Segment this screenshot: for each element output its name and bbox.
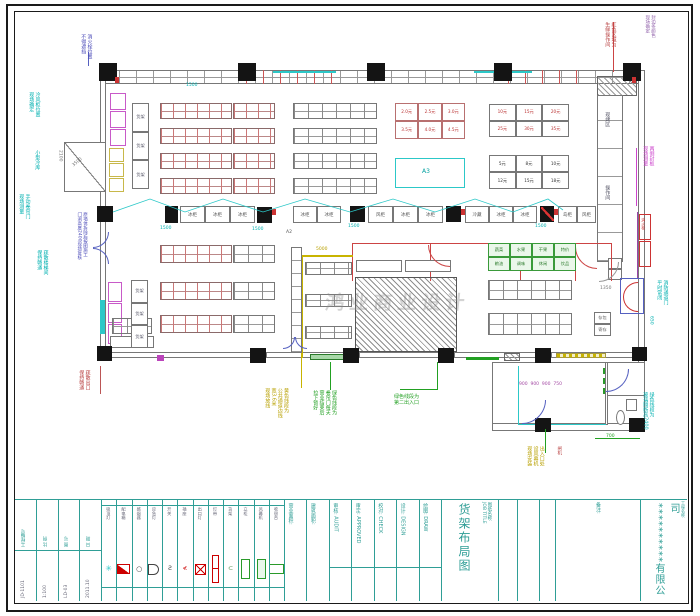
legend-label: 感烟器 [137,507,141,549]
note-line: 出入口处 [539,446,544,466]
note-line: 保持畅通 [78,370,83,390]
note-shutter-note-center: 绿色线段为卷帘门每天营业结束后拉下锁好 [312,390,336,415]
tb-divider [284,499,285,601]
note-dim-top: 1500 [186,83,197,89]
column [250,348,266,363]
note-line: 黄色线段为 [283,388,288,418]
note-line: 保持畅通 [36,250,41,275]
note-line: 封边条颜色 [650,15,655,38]
info-value: 1:100 [44,554,49,598]
legend-divider [193,499,194,601]
column [97,346,112,361]
sign-label: 校对: CHECK [377,503,383,533]
promo-shelf: 调味 [510,257,532,271]
note-cold-room-note: 小型冷库 [34,150,39,170]
price-shelf: 18元 [542,172,569,189]
job-title-label: 图纸名称: JOB TITLE [480,502,491,524]
note-dim-2100: 2100 [57,150,62,161]
column [632,347,647,361]
service-counter [597,95,623,262]
legend-label: 开关 [167,507,171,549]
legend-symbol-circle: ○ [136,566,142,573]
column [438,348,454,363]
info-label: 图 号 [65,503,70,547]
legend-symbol-lt: ≮ [182,566,187,572]
promo-shelf: 蔬菜 [488,243,510,257]
yellow-aisle-line [303,255,353,257]
note-line: 玻璃隔断高2400 [642,392,647,430]
sign-divider [396,499,397,601]
note-line: 绿色线段为 [331,390,336,415]
drawing-sheet: 冰柜冰柜冰柜冰柜冰柜风柜冰柜冰柜冷藏冰柜冰柜岛柜风柜2.0元2.5元3.0元3.… [0,0,700,616]
info-value: JD-1101 [22,554,27,598]
legend-label: 插座 [182,507,186,549]
sink-fixture [626,399,637,411]
gondola [233,315,275,333]
lobby-cyan-line [518,366,519,424]
price-shelf: 20元 [542,104,569,121]
note-line: 闸机 [556,446,561,455]
wall-cabinet [109,178,124,192]
note-line: 营业结束后 [318,390,323,415]
legend-symbol-cell: S [162,553,177,585]
note-dim-aisle-2: 1500 [252,227,263,233]
side-shelf: 货架 [132,132,149,161]
note-line: 消火栓 [641,218,645,230]
gondola [160,103,232,119]
legend-symbol-half [149,564,159,575]
legend-symbol-vrect [241,559,250,579]
info-value: LD-03 [65,554,70,598]
price-shelf: 3.5元 [395,121,418,139]
info-table-row-line [15,550,101,551]
wall-cabinet [110,111,126,128]
company-name: **********有限公司 [651,503,681,601]
legend-symbol-tribox [117,564,130,574]
note-line: 消防通道门 [662,280,667,305]
gondola [233,153,275,169]
bottom-wall [359,352,440,358]
side-shelf: 货架 [131,280,148,303]
note-line: 平时常闭 [656,280,661,305]
tb-divider [498,499,499,601]
legend-label: 立柜 [243,507,247,549]
wall-cabinet [108,282,122,302]
note-line: 现场放线 [264,388,269,418]
legend-divider [238,499,239,601]
note-counter-label-2: 操作间 [604,185,609,200]
note-line: 现场安装 [526,446,531,466]
promo-shelf: 饮品 [554,257,576,271]
note-line: 小型冷库 [34,150,39,170]
legend-symbol-burst: ✳ [105,565,112,573]
leader [330,362,331,390]
price-shelf: 25元 [489,121,516,138]
price-shelf: 15元 [516,104,543,121]
legend-label: 应急灯 [152,507,156,549]
red-marker [632,77,636,83]
sign-divider [351,499,352,601]
note-line: 疏散楼梯间 [42,250,47,275]
note-line: 门洞高度2400现场复核 [76,212,81,259]
price-shelf: 10元 [542,155,569,172]
legend-symbol-hrect [269,564,284,574]
gondola [233,103,275,119]
info-label: 工程编号 [22,503,27,547]
leader [100,366,101,394]
note-air-curtain-note: 出入口处设风幕机现场安装 [526,446,544,466]
note-exit-note-bl: 疏散出口保持畅通 [78,370,90,390]
leader [301,358,302,388]
sign-label: 审核: AUDIT [332,503,338,532]
legend-symbol-vbar [212,555,219,583]
note-line: 冷风柜位置 [34,92,39,117]
sign-divider [306,499,307,601]
sign-divider [374,499,375,601]
legend-divider [254,499,255,601]
legend-divider [269,499,270,601]
legend-label: 收银台 [274,507,278,549]
price-shelf: 4.0元 [418,121,441,139]
price-shelf: 30元 [516,121,543,138]
note-line: 疏散出口 [84,370,89,390]
gondola [233,128,275,144]
sign-label: 建筑面积: [309,503,315,525]
note-line: 现场确定 [28,92,33,117]
gondola [160,245,232,263]
sign-divider [329,499,330,601]
left-wall-shutter [100,300,105,334]
price-shelf: 2.5元 [418,103,441,121]
note-line: 红色区域为 [610,22,615,47]
legend-symbol-cell [238,553,253,585]
note-line: 不得遮挡 [80,34,85,59]
note-edge-seal-note: 两侧封板现场测量 [642,146,654,166]
note-checkout-dims: 900 900 900 750 [519,382,562,388]
legend-symbol-s: S [168,566,172,572]
note-line: 生鲜操作间 [604,22,609,47]
price-shelf: 35元 [542,121,569,138]
note-line: 手动卷帘门 [24,194,29,219]
entry-green-line [466,357,499,360]
note-dim-aisle-1: 1500 [160,226,171,232]
legend-bottom-line [101,587,284,588]
note-dim-1350: 1350 [600,286,611,292]
gondola [293,153,377,169]
gondola [293,103,377,119]
column [535,418,551,432]
gondola [233,245,275,263]
note-dim-650: 650 [648,316,653,325]
note-wall-demolish-note: 原墙体拆除后按图施工门洞高度2400现场复核 [76,212,86,259]
center-shelf-row [305,262,352,275]
note-glass-note: 绿色线段为玻璃隔断高2400 [642,392,654,430]
note-line: 绿色线段为 [648,392,653,430]
price-shelf: 15元 [516,172,543,189]
legend-divider [223,499,224,601]
folding-door [603,368,605,394]
title-block: 工程编号JD-1101比 例1:100图 号LD-03日 期2011.10 吸顶… [15,499,687,601]
tb-divider [555,499,556,601]
side-shelf: 货架 [132,160,149,189]
legend-symbol-cell: ○ [132,553,147,585]
legend-symbol-cell [116,553,131,585]
dimension-line [595,438,640,439]
note-dim-aisle-4: 1500 [535,224,546,230]
note-line: 现烤区 [604,112,609,127]
wall-cabinet [110,93,126,110]
note-line: 设风幕机 [532,446,537,466]
column [343,348,359,363]
lobby-cyan-line [518,424,606,425]
note-line: 现场测量 [18,194,23,219]
legend-symbol-c: ⊂ [228,566,233,572]
legend-divider [177,499,178,601]
note-line: 现场确定 [644,15,649,38]
legend-label: 货架 [228,507,232,549]
info-label: 日 期 [87,503,92,547]
tb-divider [539,499,540,601]
note-stair-note: 疏散楼梯间保持畅通 [36,250,48,275]
center-shelf-row [305,326,352,339]
fire-hydrant-box [639,241,651,267]
column [535,348,551,363]
note-zone-a2: A2 [286,230,292,236]
note-line: 公共通道边线 [277,388,282,418]
gondola [160,282,232,300]
locker: 寄存 [594,324,611,336]
price-shelf: 8元 [516,155,543,172]
note-line: 现场测量 [642,146,647,166]
side-shelf: 货架 [131,325,148,348]
note-dim-aisle-3: 1500 [348,224,359,230]
wall-cabinet [109,163,124,177]
toilet-fixture [616,410,625,425]
tb-divider [640,499,641,601]
tb-divider [517,499,518,601]
wall-cabinet [110,129,126,146]
legend-divider [116,499,117,601]
note-counter-label-1: 现烤区 [604,112,609,127]
price-shelf: 5元 [489,155,516,172]
promo-shelf: 水果 [510,243,532,257]
red-marker [115,77,119,83]
leader [636,148,637,206]
legend-divider [208,499,209,601]
leader [437,362,438,390]
legend-label: 灯带 [213,507,217,549]
price-shelf: 3.0元 [442,103,465,121]
side-shelf: 货架 [132,103,149,132]
legend-symbol-tick [213,568,218,569]
gondola [160,128,232,144]
legend-label: 出口灯 [198,507,202,549]
gondola [293,128,377,144]
note-cold-cabinet-note: 冷风柜位置现场确定 [28,92,40,117]
legend-divider [162,499,163,601]
note-line: 拉下锁好 [312,390,317,415]
note-hydrant-note: 消火栓位置不得遮挡 [80,34,92,59]
marker [157,355,164,361]
legend-label: 风幕机 [259,507,263,549]
note-line: 宽3.6米 [270,388,275,418]
price-shelf: 12元 [489,172,516,189]
notes-label: 备注: [595,502,602,514]
leader [400,389,438,390]
drawing-title: 货架布局图 [456,503,473,573]
job-title-label-cn: 图纸名称: [486,502,491,524]
note-line: 两侧封板 [648,146,653,166]
note-hydrant-box-label: 消火栓 [641,218,645,230]
legend-symbol-xbox [195,564,206,575]
note-line: 操作间 [604,185,609,200]
entry-hatch-strip [504,353,520,361]
note-line: 卷帘门每天 [325,390,330,415]
legend-label: 吸顶灯 [106,507,110,549]
note-dim-700: 700 [606,434,615,440]
legend-symbol-cell [147,553,162,585]
note-zone-a3: A3 [422,168,430,176]
zone-a3-box [395,158,465,188]
legend-symbol-vrect2 [257,559,266,579]
side-shelf: 货架 [131,303,148,326]
column [494,63,512,81]
sign-label: 审定: APPROVED [354,503,360,543]
legend-symbol-cell: ≮ [177,553,192,585]
legend-symbol-cell [269,553,284,585]
roller-shutter [310,354,346,360]
job-title-label-en: JOB TITLE [480,502,485,524]
prep-room-wall [352,243,353,281]
note-line: 原墙体拆除后按图施工 [82,212,87,259]
leader [545,429,546,453]
wall-cabinet [109,148,124,162]
gondola [160,153,232,169]
price-shelf: 10元 [489,104,516,121]
note-line: 2100 [57,150,62,161]
note-yellow-line-note: 黄色线段为公共通道边线宽3.6米现场放线 [264,388,288,418]
sign-label: 营业面积: [287,503,293,525]
legend-label: 配电箱 [121,507,125,549]
promo-shelf: 特价 [554,243,576,257]
note-shutter-note-left: 手动卷帘门现场测量 [18,194,30,219]
info-value: 2011.10 [87,554,92,598]
sign-divider [419,499,420,601]
price-shelf: 4.5元 [442,121,465,139]
note-second-exit-note: 绿色线段为 第二出入口 [394,394,419,407]
lobby-partition-line [607,395,645,396]
column [367,63,385,81]
legend-divider [147,499,148,601]
sign-row-line [329,567,441,568]
legend-symbol-cell [193,553,208,585]
aisle-annotation-polyline [105,192,565,218]
gondola [488,313,572,335]
prep-counter [356,260,402,272]
note-fire-door-note: 消防通道门平时常闭 [656,280,668,305]
freezer-cell: 风柜 [577,206,596,223]
note-red-zone-note: 红色区域为生鲜操作间 [604,22,616,47]
locker: 存包 [594,312,611,324]
tb-divider [441,499,442,601]
legend-symbol-cell: ⊂ [223,553,238,585]
note-dim-5000: 5000 [316,247,327,253]
entry-yellow-strip [556,353,606,358]
info-label: 比 例 [44,503,49,547]
sign-label: 绘图: DRAW [422,503,428,532]
gondola [233,282,275,300]
note-gate-note: 闸机 [556,446,561,455]
promo-shelf: 干果 [532,243,554,257]
legend-top-line [101,505,284,506]
tb-divider [101,499,102,601]
promo-shelf: 粮油 [488,257,510,271]
bottom-wall [106,352,251,358]
note-line: 消火栓位置 [86,34,91,59]
leader [637,212,638,278]
price-shelf: 2.0元 [395,103,418,121]
ramp [64,142,106,192]
gondola [160,315,232,333]
legend-symbol-cell [254,553,269,585]
legend-symbol-cell: ✳ [101,553,116,585]
note-line: 650 [648,316,653,325]
top-wall-cyan-line [273,71,336,73]
legend-divider [132,499,133,601]
note-corner-note: 封边条颜色现场确定 [644,15,654,38]
legend-symbol-cell [208,553,223,585]
column [238,63,256,81]
legend-symbol-stem [148,564,149,575]
sign-label: 设计: DESIGN [399,503,405,536]
watermark: 鸿业商业设计 [294,288,502,315]
promo-shelf: 休闲 [532,257,554,271]
